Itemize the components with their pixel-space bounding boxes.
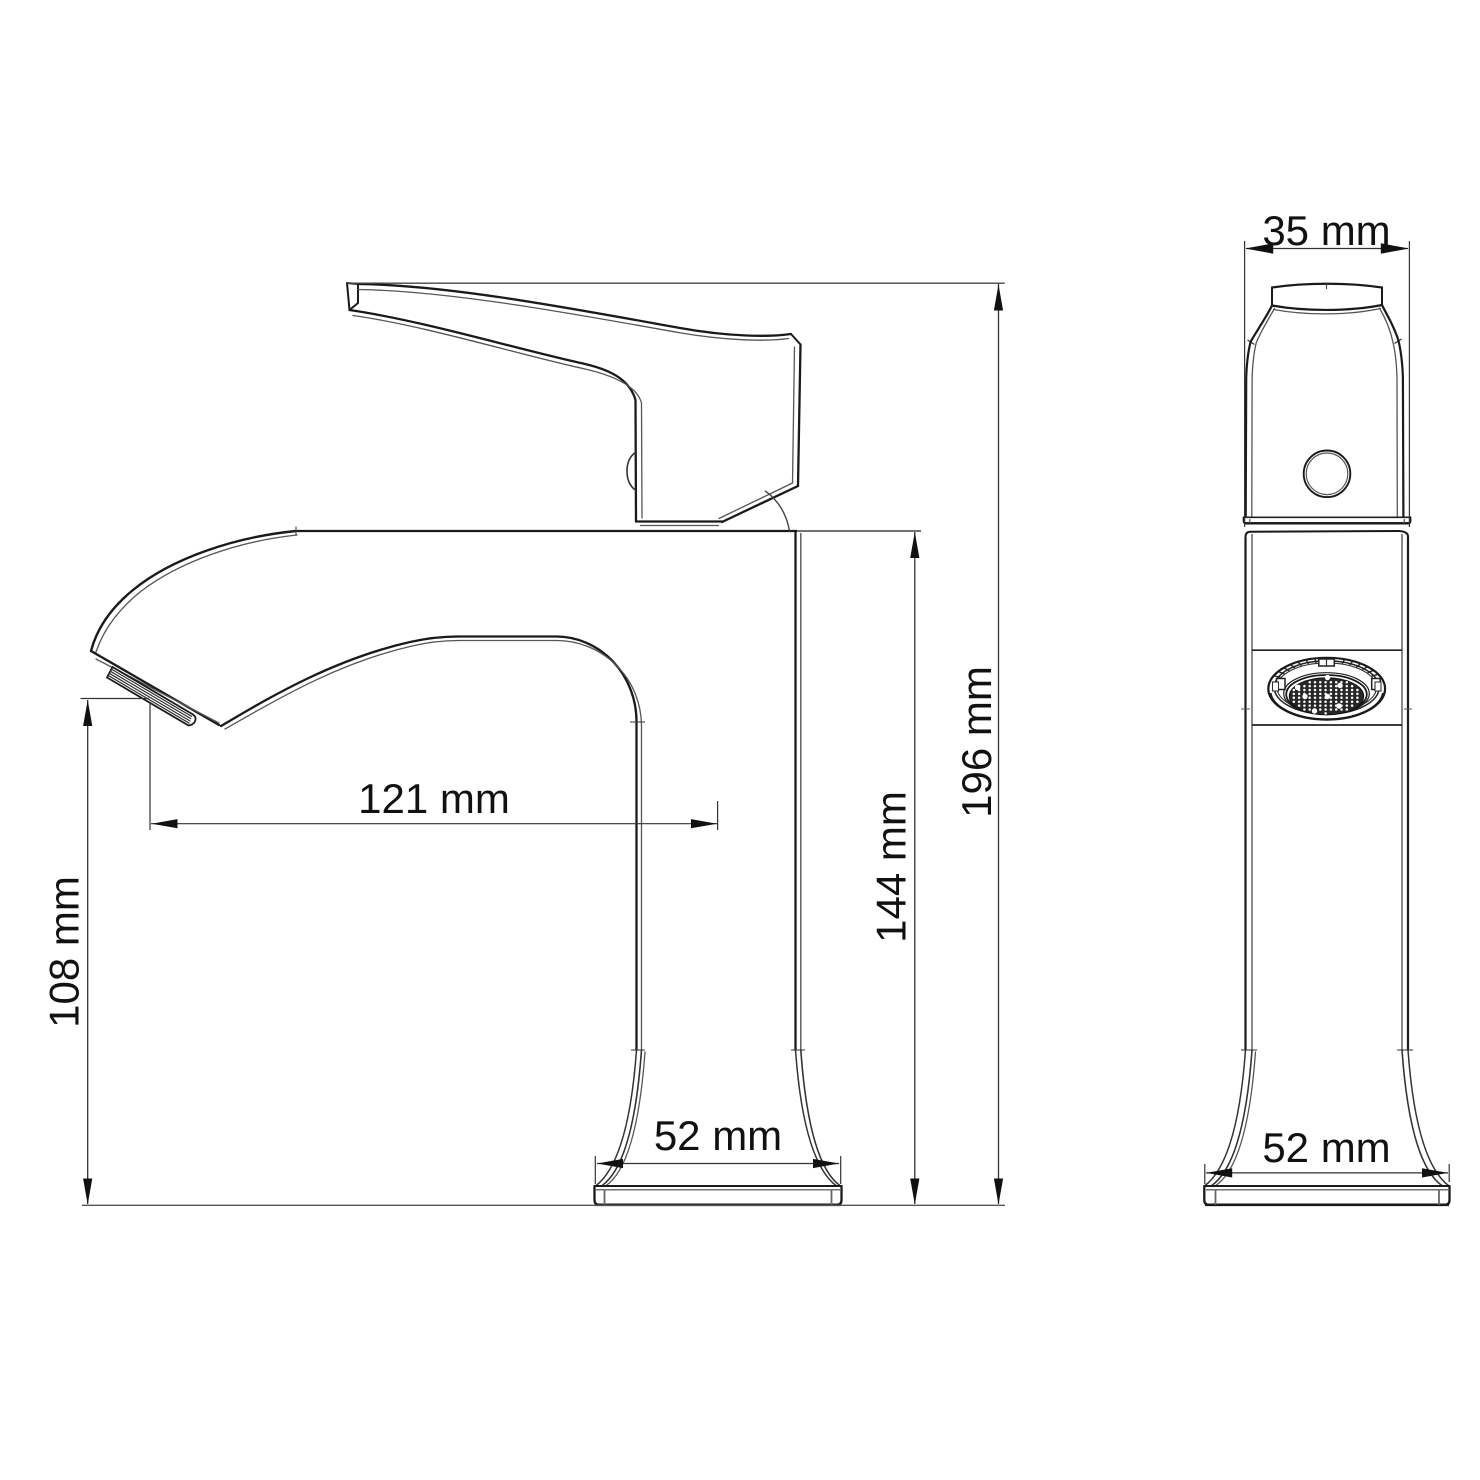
- svg-text:52 mm: 52 mm: [1262, 1124, 1390, 1171]
- svg-text:144 mm: 144 mm: [868, 791, 915, 943]
- svg-text:121 mm: 121 mm: [358, 775, 510, 822]
- svg-text:52 mm: 52 mm: [654, 1112, 782, 1159]
- svg-text:35 mm: 35 mm: [1262, 207, 1390, 254]
- svg-text:108 mm: 108 mm: [41, 876, 88, 1028]
- svg-text:196 mm: 196 mm: [953, 666, 1000, 818]
